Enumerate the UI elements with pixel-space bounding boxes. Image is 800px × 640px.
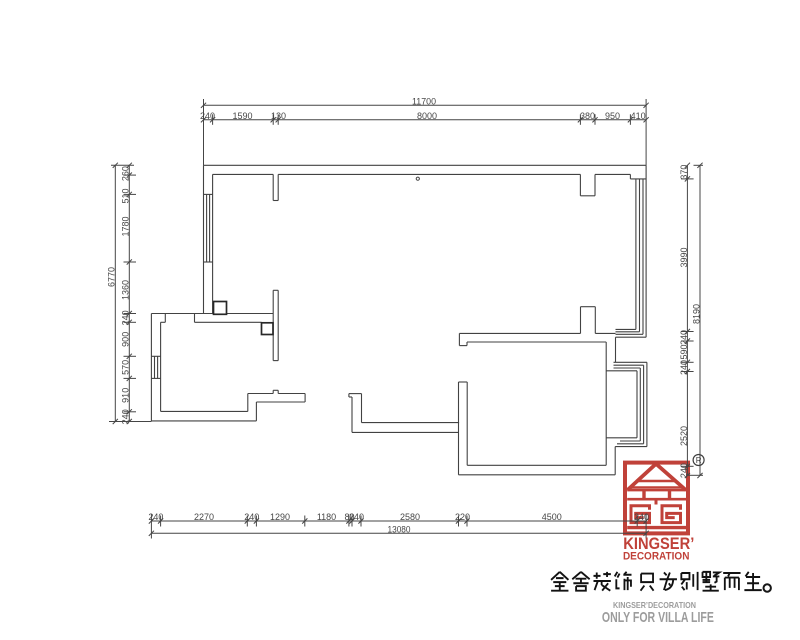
svg-text:380: 380 — [580, 111, 595, 121]
svg-text:240: 240 — [679, 330, 689, 345]
svg-text:900: 900 — [121, 332, 131, 347]
svg-text:13080: 13080 — [388, 525, 411, 535]
svg-text:240: 240 — [200, 111, 215, 121]
svg-text:370: 370 — [679, 165, 689, 180]
svg-text:4500: 4500 — [542, 512, 562, 522]
svg-text:510: 510 — [121, 188, 131, 203]
svg-text:1180: 1180 — [317, 512, 336, 522]
svg-text:2580: 2580 — [400, 512, 420, 522]
svg-text:240: 240 — [121, 409, 131, 424]
svg-text:1290: 1290 — [270, 512, 290, 522]
svg-text:130: 130 — [271, 111, 286, 121]
svg-text:240: 240 — [634, 512, 649, 522]
svg-text:910: 910 — [121, 388, 131, 403]
svg-text:240: 240 — [148, 512, 163, 522]
svg-text:2270: 2270 — [194, 512, 214, 522]
svg-text:R: R — [696, 456, 702, 465]
svg-text:220: 220 — [455, 512, 470, 522]
svg-text:240: 240 — [679, 463, 689, 478]
svg-text:570: 570 — [121, 360, 131, 375]
svg-text:240: 240 — [121, 310, 131, 325]
svg-text:ONLY FOR VILLA LIFE: ONLY FOR VILLA LIFE — [602, 609, 714, 626]
svg-text:1360: 1360 — [121, 280, 131, 300]
svg-text:6770: 6770 — [107, 267, 117, 287]
svg-text:11700: 11700 — [412, 96, 436, 106]
svg-text:8000: 8000 — [417, 111, 437, 121]
svg-text:950: 950 — [605, 111, 620, 121]
svg-text:2520: 2520 — [679, 426, 689, 446]
svg-text:3990: 3990 — [679, 247, 689, 267]
svg-text:590: 590 — [679, 344, 689, 359]
svg-text:1780: 1780 — [121, 216, 131, 236]
svg-text:240: 240 — [244, 512, 259, 522]
svg-text:1590: 1590 — [232, 111, 252, 121]
svg-text:240: 240 — [679, 360, 689, 375]
svg-text:260: 260 — [121, 166, 131, 181]
svg-text:DECORATION: DECORATION — [623, 551, 690, 563]
svg-text:240: 240 — [349, 512, 364, 522]
svg-text:8190: 8190 — [691, 304, 701, 324]
svg-text:410: 410 — [631, 111, 646, 121]
